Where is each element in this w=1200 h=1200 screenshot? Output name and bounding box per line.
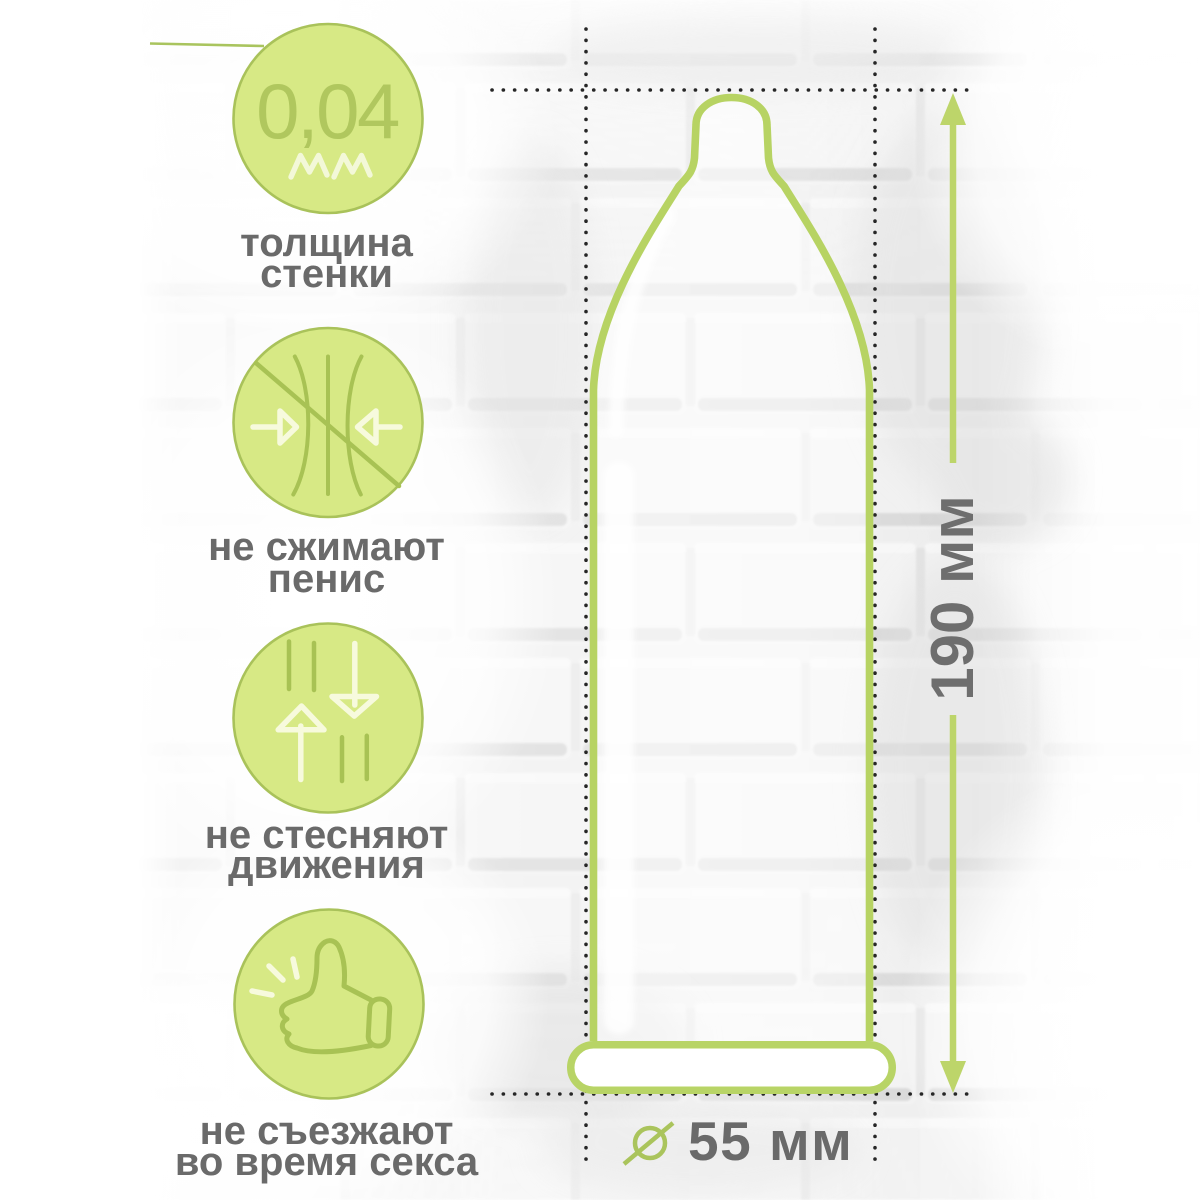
svg-text:движения: движения [228,843,425,887]
svg-text:пенис: пенис [268,557,385,601]
svg-text:стенки: стенки [260,252,393,296]
svg-text:190 мм: 190 мм [919,495,986,701]
svg-text:во время секса: во время секса [175,1140,479,1184]
svg-text:55 мм: 55 мм [688,1110,853,1172]
svg-text:0,04: 0,04 [256,67,399,155]
